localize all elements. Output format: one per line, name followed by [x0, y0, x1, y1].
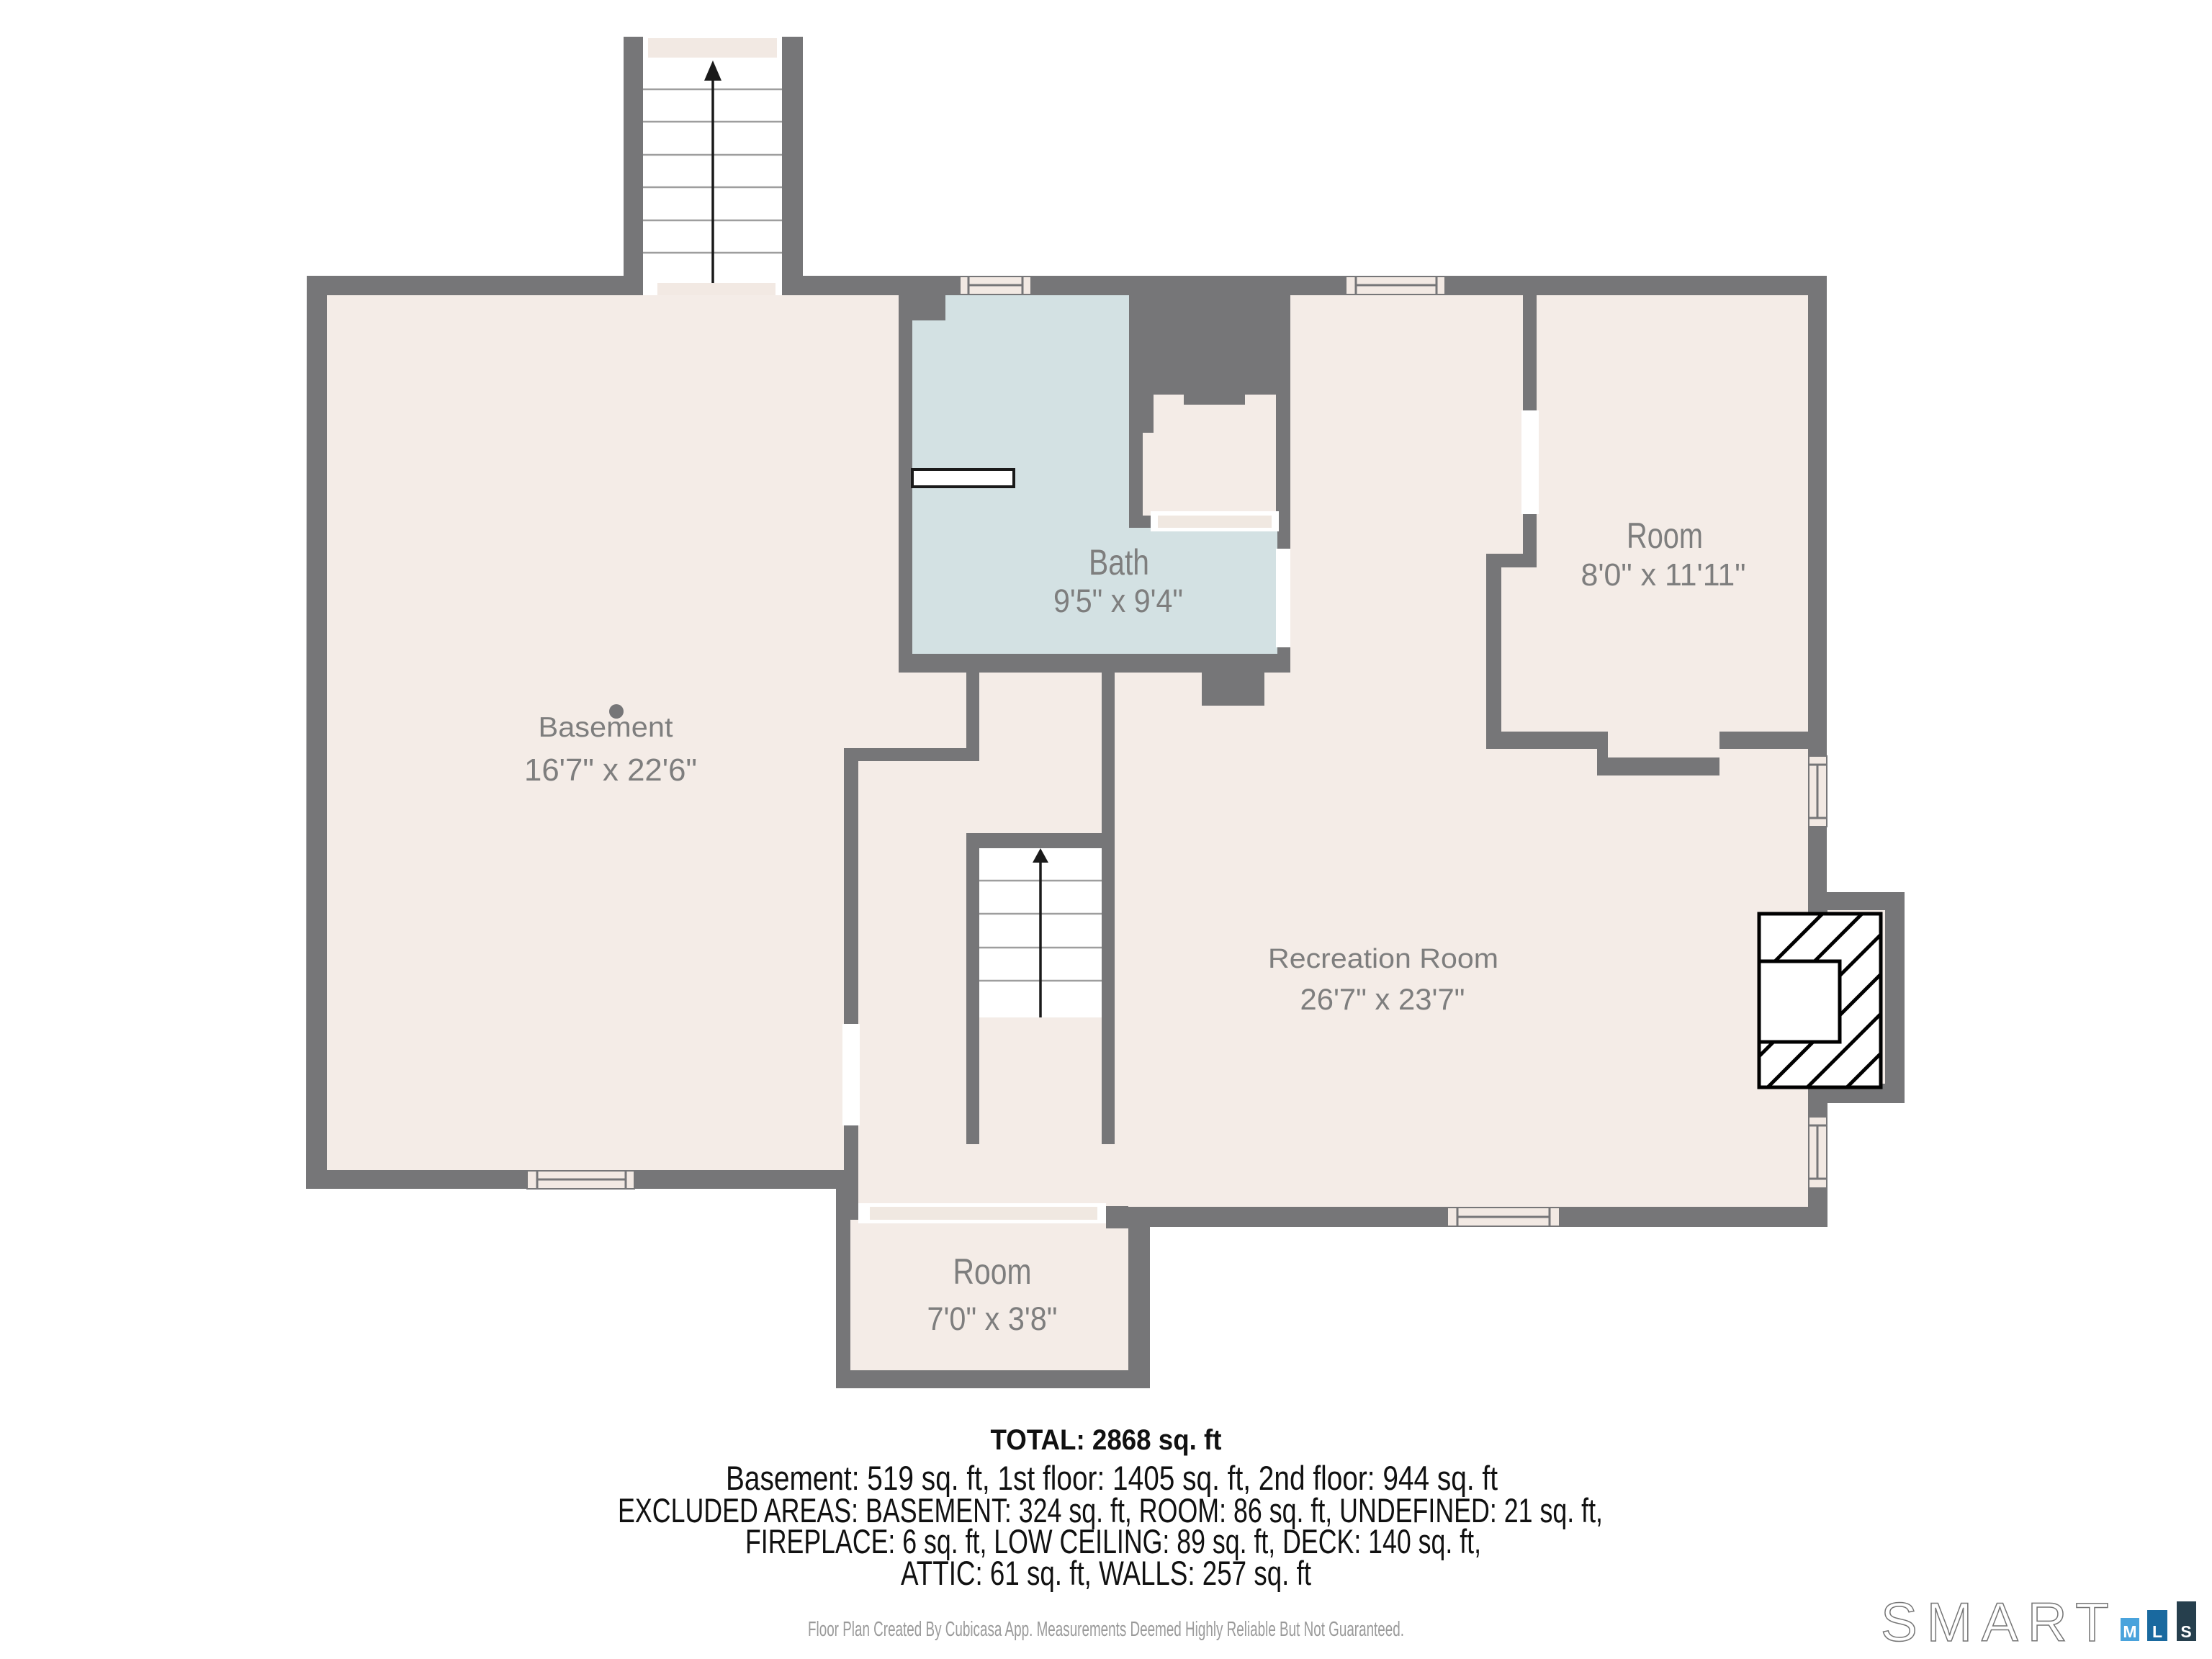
svg-text:Room: Room — [1627, 516, 1703, 556]
svg-text:Floor Plan Created By Cubicasa: Floor Plan Created By Cubicasa App. Meas… — [808, 1618, 1404, 1641]
svg-text:ATTIC: 61 sq. ft, WALLS: 257 s: ATTIC: 61 sq. ft, WALLS: 257 sq. ft — [901, 1554, 1311, 1592]
svg-text:7'0" x 3'8": 7'0" x 3'8" — [927, 1300, 1058, 1337]
svg-text:Room: Room — [953, 1251, 1032, 1292]
svg-text:8'0" x 11'11": 8'0" x 11'11" — [1581, 557, 1746, 593]
svg-text:Basement: Basement — [539, 712, 673, 743]
svg-text:16'7" x 22'6": 16'7" x 22'6" — [524, 752, 697, 788]
svg-text:L: L — [2152, 1622, 2162, 1641]
svg-text:9'5" x 9'4": 9'5" x 9'4" — [1053, 583, 1183, 619]
svg-text:Bath: Bath — [1089, 542, 1149, 583]
svg-text:S: S — [2180, 1622, 2191, 1641]
svg-text:M: M — [2123, 1622, 2136, 1641]
svg-text:26'7" x 23'7": 26'7" x 23'7" — [1300, 982, 1465, 1016]
svg-text:SMART: SMART — [1881, 1592, 2118, 1653]
svg-text:Recreation Room: Recreation Room — [1268, 944, 1498, 974]
svg-text:TOTAL: 2868 sq. ft: TOTAL: 2868 sq. ft — [991, 1424, 1222, 1456]
